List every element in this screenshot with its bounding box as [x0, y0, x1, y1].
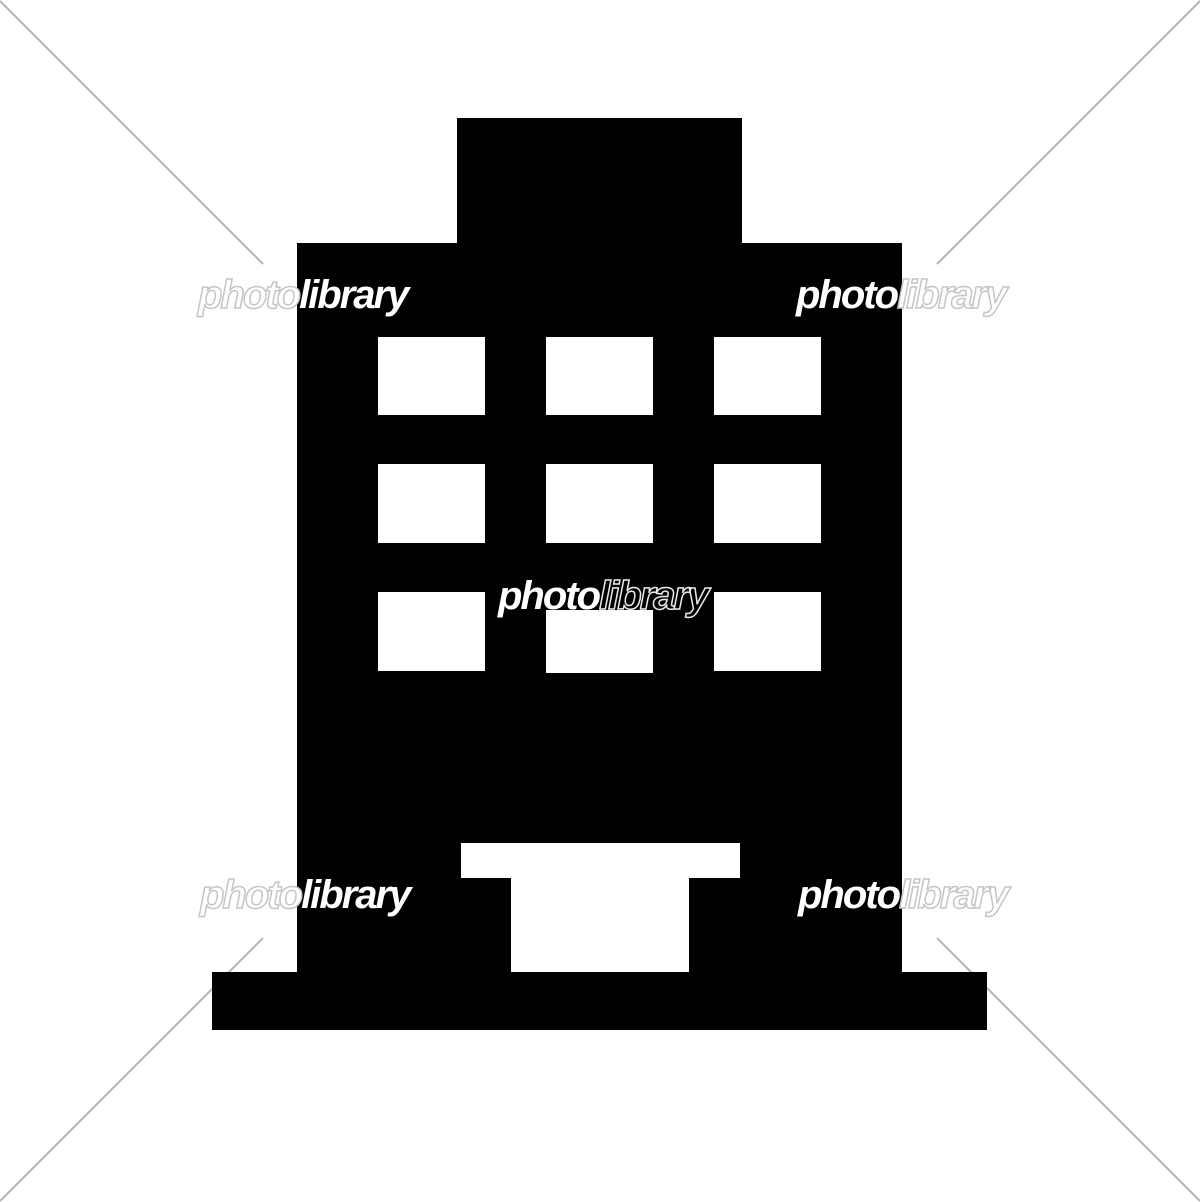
watermark-text-center: photolibrary — [498, 576, 707, 616]
watermark-part-library: library — [897, 273, 1005, 317]
window-r1c3 — [714, 337, 821, 415]
watermark-diagonal-line-top-right — [936, 0, 1200, 264]
window-r2c3 — [714, 464, 821, 543]
building-base — [212, 972, 987, 1030]
watermark-diagonal-line-top-left — [0, 0, 264, 264]
watermark-part-photo: photo — [498, 574, 599, 618]
watermark-part-photo: photo — [796, 273, 897, 317]
window-r1c2 — [546, 337, 653, 415]
window-r2c1 — [378, 464, 485, 543]
watermark-part-library: library — [301, 873, 409, 917]
watermark-text-bottom-right: photolibrary — [798, 875, 1007, 915]
watermark-part-library: library — [899, 873, 1007, 917]
window-r3c3 — [714, 592, 821, 671]
watermark-text-bottom-left: photolibrary — [200, 875, 409, 915]
watermark-text-top-left: photolibrary — [198, 275, 407, 315]
window-r3c1 — [378, 592, 485, 671]
window-r3c2 — [546, 610, 653, 673]
watermark-part-library: library — [299, 273, 407, 317]
building-roof-block — [457, 118, 742, 244]
watermark-text-top-right: photolibrary — [796, 275, 1005, 315]
window-r2c2 — [546, 464, 653, 543]
entrance-canopy — [461, 843, 740, 878]
watermark-part-photo: photo — [200, 873, 301, 917]
watermark-part-library: library — [599, 574, 707, 618]
watermark-part-photo: photo — [798, 873, 899, 917]
entrance-door — [511, 878, 689, 972]
stock-image-preview: photolibrary photolibrary photolibrary p… — [0, 0, 1200, 1200]
watermark-part-photo: photo — [198, 273, 299, 317]
window-r1c1 — [378, 337, 485, 415]
